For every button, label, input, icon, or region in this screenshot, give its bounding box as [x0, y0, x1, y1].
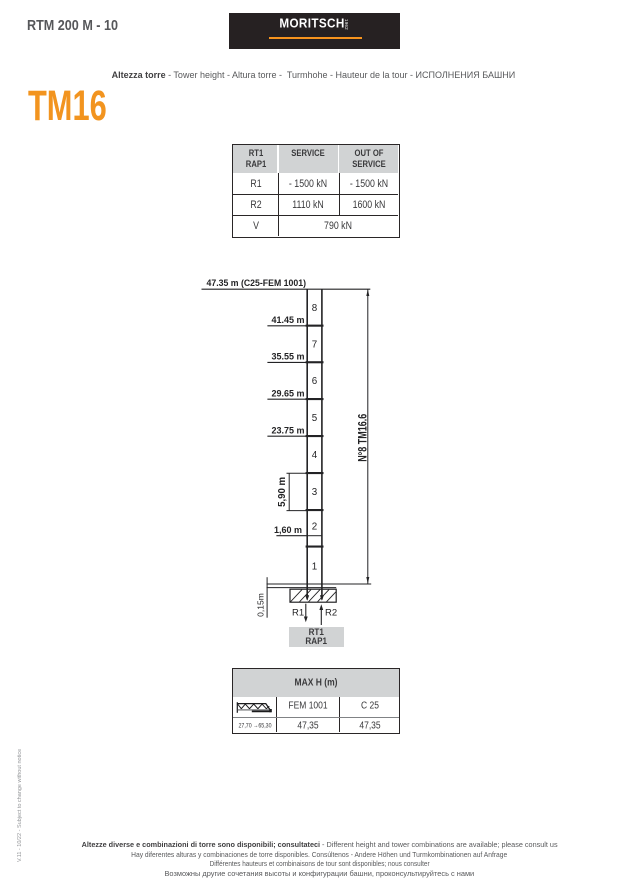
- svg-text:7: 7: [312, 339, 317, 350]
- svg-text:1,60 m: 1,60 m: [274, 525, 302, 535]
- svg-text:23.75 m: 23.75 m: [271, 425, 304, 435]
- svg-text:R2: R2: [325, 608, 337, 619]
- svg-text:47.35 m (C25-FEM 1001): 47.35 m (C25-FEM 1001): [207, 278, 307, 289]
- svg-text:3: 3: [312, 487, 318, 498]
- svg-text:8: 8: [312, 303, 318, 314]
- svg-text:29.65 m: 29.65 m: [271, 388, 304, 398]
- svg-text:5,90 m: 5,90 m: [276, 477, 288, 507]
- svg-text:4: 4: [312, 450, 318, 461]
- svg-text:N°8 TM16.6: N°8 TM16.6: [356, 414, 370, 462]
- svg-text:2: 2: [312, 521, 317, 532]
- svg-text:5: 5: [312, 413, 318, 424]
- svg-text:R1: R1: [292, 608, 304, 619]
- svg-text:0,15m: 0,15m: [256, 593, 266, 617]
- svg-text:41.45 m: 41.45 m: [271, 315, 304, 325]
- svg-text:1: 1: [312, 561, 317, 572]
- svg-text:35.55 m: 35.55 m: [271, 352, 304, 362]
- svg-text:6: 6: [312, 376, 318, 387]
